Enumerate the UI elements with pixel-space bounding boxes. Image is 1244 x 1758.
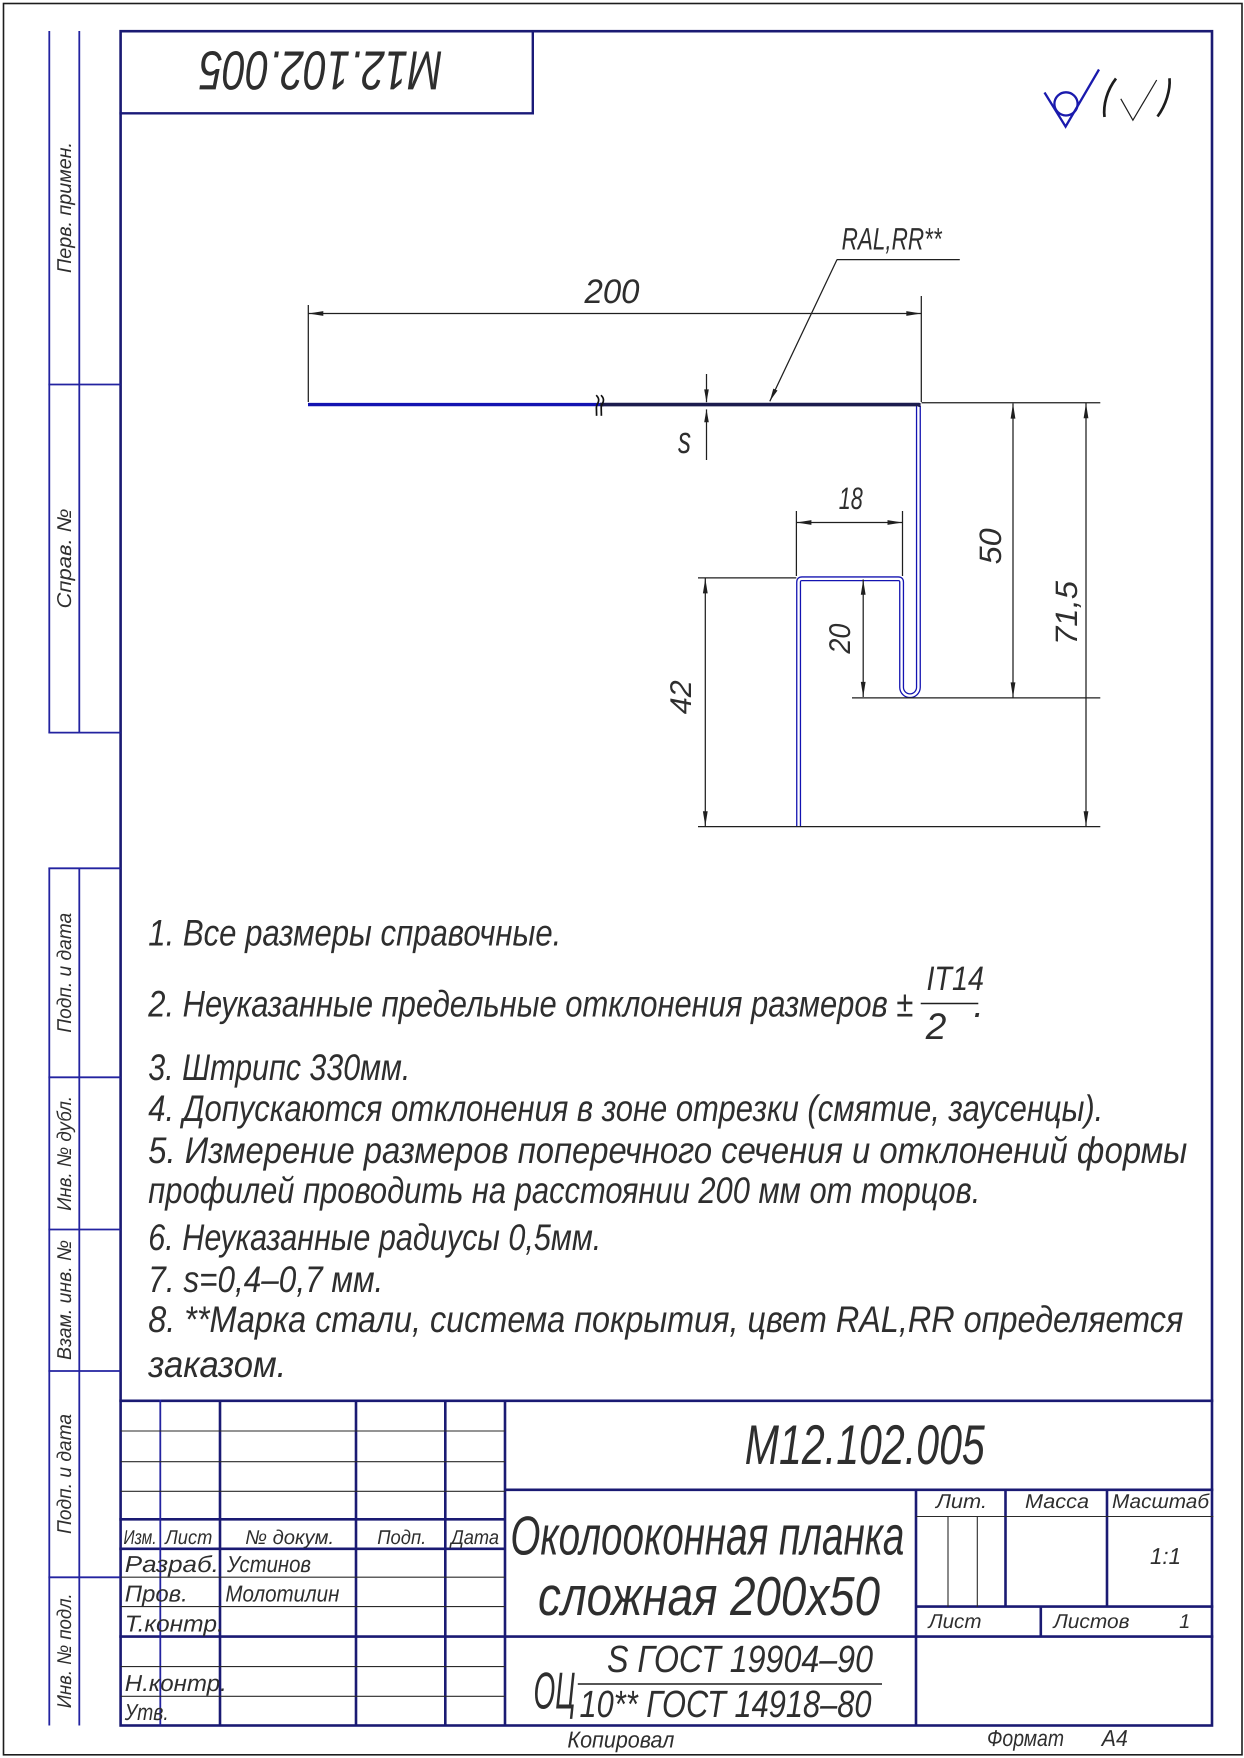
svg-text:Н.контр.: Н.контр.	[125, 1670, 227, 1696]
svg-text:RAL,RR**: RAL,RR**	[842, 222, 943, 257]
svg-text:Разраб.: Разраб.	[125, 1551, 219, 1577]
svg-text:50: 50	[973, 528, 1008, 564]
svg-text:Подп. и дата: Подп. и дата	[54, 913, 76, 1033]
svg-text:А4: А4	[1100, 1725, 1128, 1751]
svg-text:Масса: Масса	[1025, 1491, 1089, 1513]
svg-text:Инв. № подл.: Инв. № подл.	[54, 1593, 76, 1708]
svg-text:7. s=0,4–0,7 мм.: 7. s=0,4–0,7 мм.	[148, 1259, 383, 1300]
svg-text:Устинов: Устинов	[226, 1551, 311, 1577]
svg-text:Подп.: Подп.	[377, 1527, 426, 1549]
svg-text:сложная 200х50: сложная 200х50	[538, 1565, 880, 1627]
svg-text:профилей проводить на расстоян: профилей проводить на расстоянии 200 мм …	[148, 1170, 980, 1211]
svg-text:ОЦ: ОЦ	[534, 1663, 576, 1721]
svg-text:42: 42	[665, 680, 698, 714]
svg-text:М12.102.005: М12.102.005	[745, 1413, 986, 1476]
svg-text:Пров.: Пров.	[125, 1581, 188, 1607]
svg-text:заказом.: заказом.	[147, 1344, 286, 1385]
svg-text:Подп. и дата: Подп. и дата	[54, 1414, 76, 1534]
svg-text:5. Измерение размеров попереч: 5. Измерение размеров поперечного сечени…	[148, 1130, 1187, 1171]
svg-text:8. **Марка стали, система пок: 8. **Марка стали, система покрытия, цвет…	[148, 1299, 1183, 1340]
svg-text:S ГОСТ 19904–90: S ГОСТ 19904–90	[607, 1639, 873, 1681]
svg-text:4. Допускаются отклонения в з: 4. Допускаются отклонения в зоне отрезки…	[148, 1088, 1103, 1129]
svg-text:18: 18	[839, 481, 864, 516]
svg-text:М12.102.005: М12.102.005	[199, 40, 442, 102]
svg-text:Перв. примен.: Перв. примен.	[54, 142, 76, 273]
svg-text:Утв.: Утв.	[124, 1699, 169, 1725]
svg-text:Формат: Формат	[987, 1725, 1064, 1751]
svg-text:Лист: Лист	[163, 1527, 212, 1549]
svg-text:№ докум.: № докум.	[245, 1527, 334, 1549]
svg-text:20: 20	[824, 623, 857, 654]
svg-text:Молотилин: Молотилин	[225, 1581, 339, 1607]
svg-text:10** ГОСТ 14918–80: 10** ГОСТ 14918–80	[580, 1684, 872, 1726]
svg-text:1:1: 1:1	[1150, 1543, 1181, 1569]
svg-text:Копировал: Копировал	[567, 1727, 674, 1753]
svg-text:200: 200	[584, 273, 640, 311]
svg-text:Справ. №: Справ. №	[54, 509, 76, 609]
svg-text:2. Неуказанные предельные отк: 2. Неуказанные предельные отклонения раз…	[147, 984, 913, 1025]
svg-text:Дата: Дата	[449, 1527, 499, 1549]
svg-text:Масштаб: Масштаб	[1112, 1491, 1210, 1513]
svg-text:1. Все размеры справочные.: 1. Все размеры справочные.	[148, 913, 561, 954]
svg-text:s: s	[678, 420, 691, 462]
svg-text:Лист: Лист	[926, 1611, 981, 1633]
svg-text:Листов: Листов	[1051, 1611, 1129, 1633]
svg-text:Инв. № дубл.: Инв. № дубл.	[54, 1096, 76, 1211]
svg-text:Околооконная планка: Околооконная планка	[510, 1504, 904, 1566]
svg-text:3. Штрипс 330мм.: 3. Штрипс 330мм.	[148, 1047, 410, 1088]
svg-text:1: 1	[1179, 1611, 1190, 1633]
svg-text:.: .	[974, 984, 984, 1025]
svg-text:71,5: 71,5	[1049, 580, 1084, 645]
svg-text:Т.контр.: Т.контр.	[125, 1611, 224, 1637]
svg-text:Изм.: Изм.	[124, 1527, 157, 1549]
svg-text:6. Неуказанные радиусы 0,5мм.: 6. Неуказанные радиусы 0,5мм.	[148, 1217, 601, 1258]
svg-text:2: 2	[925, 1006, 947, 1047]
svg-text:Лит.: Лит.	[934, 1491, 987, 1513]
svg-text:Взам. инв. №: Взам. инв. №	[54, 1240, 76, 1360]
